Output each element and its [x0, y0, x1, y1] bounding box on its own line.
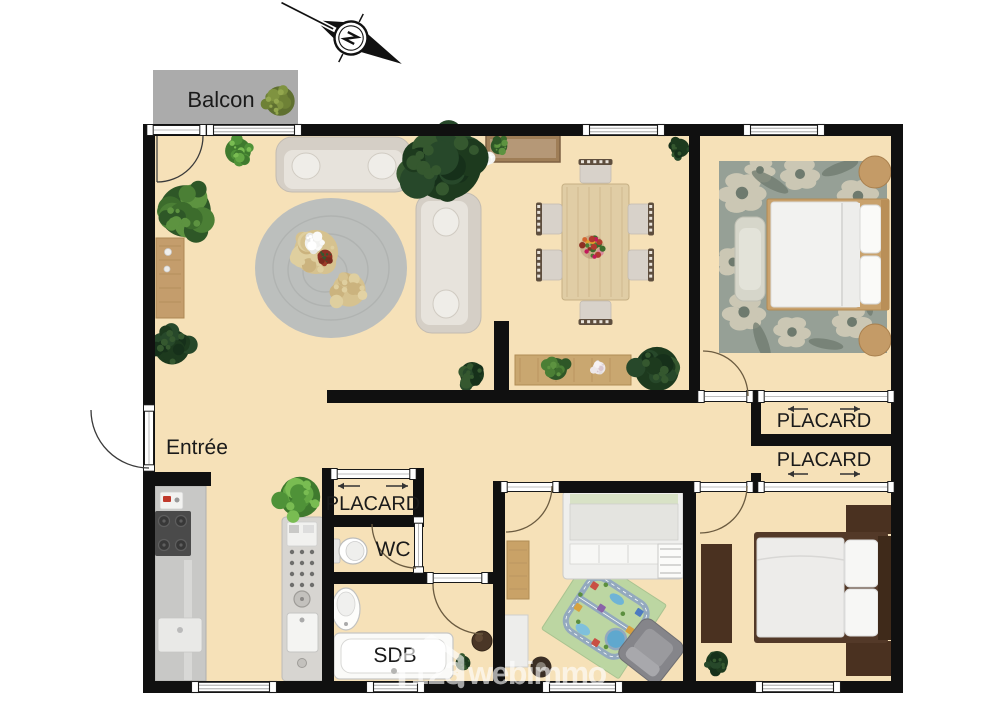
svg-text:Balcon: Balcon: [187, 87, 254, 112]
svg-text:webimmo: webimmo: [467, 655, 607, 691]
svg-text:123: 123: [411, 655, 462, 691]
svg-text:Entrée: Entrée: [166, 436, 228, 459]
svg-text:PLACARD: PLACARD: [326, 493, 420, 515]
svg-text:PLACARD: PLACARD: [777, 410, 871, 432]
svg-text:WC: WC: [375, 538, 410, 561]
svg-text:PLACARD: PLACARD: [777, 449, 871, 471]
